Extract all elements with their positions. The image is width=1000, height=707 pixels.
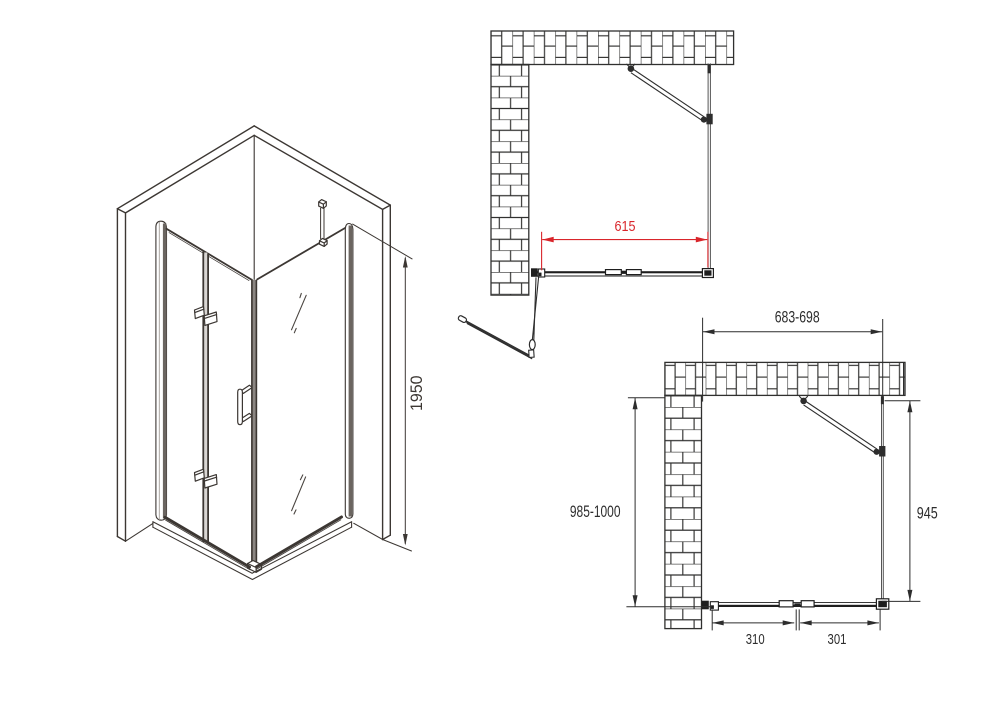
- svg-text:1950: 1950: [407, 375, 426, 411]
- svg-text:301: 301: [828, 632, 847, 648]
- svg-text:310: 310: [746, 632, 765, 648]
- svg-text:945: 945: [917, 505, 938, 523]
- svg-text:615: 615: [615, 219, 636, 235]
- svg-text:683-698: 683-698: [775, 308, 820, 326]
- svg-text:985-1000: 985-1000: [570, 503, 621, 521]
